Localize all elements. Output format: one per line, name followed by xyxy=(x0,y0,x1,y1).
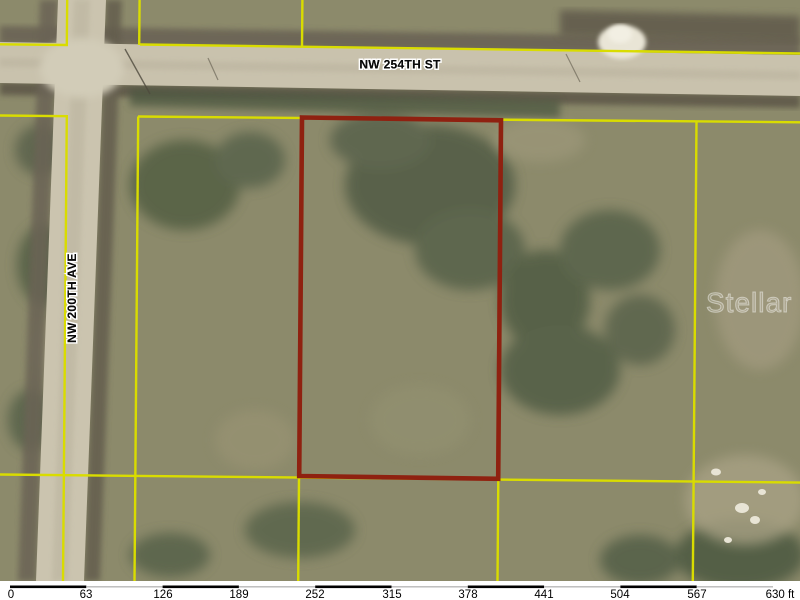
svg-text:NW 254TH ST: NW 254TH ST xyxy=(359,58,441,72)
svg-text:189: 189 xyxy=(229,589,248,600)
svg-text:441: 441 xyxy=(534,589,553,600)
svg-text:252: 252 xyxy=(305,589,324,600)
svg-text:630 ft: 630 ft xyxy=(766,589,796,600)
svg-text:126: 126 xyxy=(153,589,172,600)
svg-text:567: 567 xyxy=(687,589,706,600)
svg-text:Stellar MLS: Stellar MLS xyxy=(706,287,800,318)
svg-text:63: 63 xyxy=(80,589,93,600)
svg-text:378: 378 xyxy=(458,589,477,600)
svg-text:504: 504 xyxy=(610,589,630,600)
svg-text:NW 200TH AVE: NW 200TH AVE xyxy=(65,253,79,343)
svg-text:0: 0 xyxy=(8,589,14,600)
svg-text:315: 315 xyxy=(382,589,401,600)
